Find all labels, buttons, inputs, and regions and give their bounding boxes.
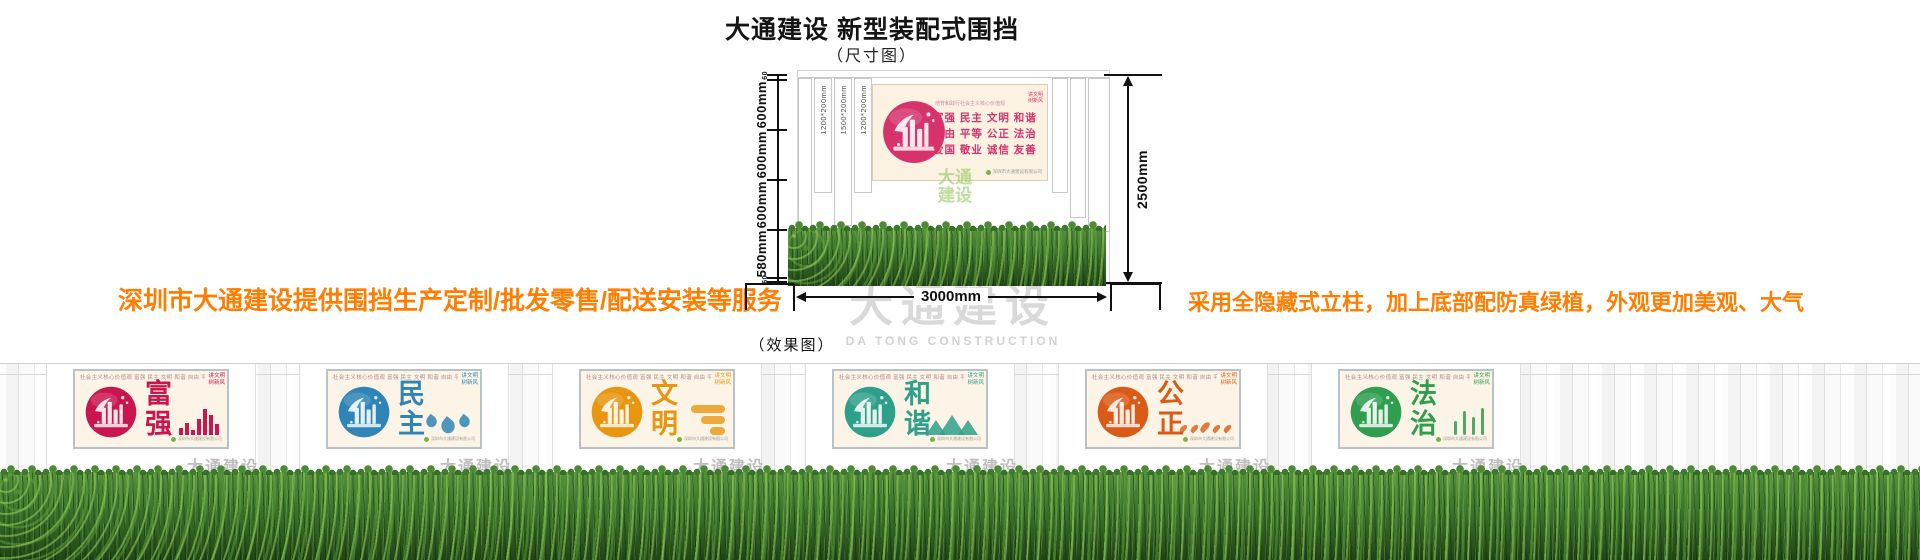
green-dot-icon — [677, 437, 682, 442]
post-column-1200b: 1200*200mm — [854, 78, 872, 193]
effect-panel-minzhu: 社会主义核心价值观 富强 民主 文明 和谐 自由 平等 公正 法治 爱国 敬业 … — [326, 369, 482, 449]
dim-label-600-2: 600mm — [754, 131, 769, 178]
dim-tick — [767, 79, 787, 81]
feature-note: 采用全隐藏式立柱，加上底部配防真绿植，外观更加美观、大气 — [1188, 285, 1804, 317]
slogan-corner: 讲文明 树新风 — [1028, 92, 1043, 104]
dim-tick-top — [1104, 74, 1162, 76]
dim-label-600-3: 600mm — [754, 181, 769, 228]
diagram-hedge-greenery — [788, 228, 1106, 286]
panel-motif-icon — [420, 403, 472, 435]
post-column-1500: 1500*200mm — [834, 78, 852, 226]
green-dot-icon — [1183, 437, 1188, 442]
dim-tick — [767, 74, 787, 76]
panel-footnote: 深圳市大通建设有限公司 — [677, 436, 728, 442]
post-column-right2 — [1070, 78, 1086, 218]
effect-panel-wenming: 社会主义核心价值观 富强 民主 文明 和谐 自由 平等 公正 法治 爱国 敬业 … — [579, 369, 735, 449]
green-dot-icon — [424, 437, 429, 442]
panel-footnote: 深圳市大通建设有限公司 — [424, 436, 475, 442]
green-logo-watermark: 大通 建设 — [938, 169, 972, 205]
fence-frame-left — [798, 78, 812, 232]
panel-footnote: 深圳市大通建设有限公司 — [1436, 436, 1487, 442]
dim-tick — [767, 277, 787, 279]
arrow-down-icon — [1123, 272, 1133, 282]
paper-cut-circle-art — [590, 385, 644, 439]
post-column-1200: 1200*200mm — [814, 78, 832, 193]
dim-endline-right — [1110, 284, 1112, 311]
panel-footnote: 深圳市大通建设有限公司 — [171, 436, 222, 442]
slogan-corner: 讲文明树新风 — [461, 373, 478, 386]
slogan-corner: 讲文明树新风 — [1473, 373, 1490, 386]
dim-tick — [767, 179, 787, 181]
paper-cut-circle-art — [843, 385, 897, 439]
dim-notch-left — [745, 283, 794, 310]
arrow-up-icon — [1123, 76, 1133, 86]
panel-motif-icon — [167, 403, 219, 435]
paper-cut-circle-art — [84, 385, 138, 439]
fence-top-rail — [798, 71, 1109, 78]
paper-cut-circle-art — [337, 385, 391, 439]
panel-footnote: 深圳市大通建设有限公司 — [1183, 436, 1234, 442]
size-diagram-caption: （尺寸图） — [827, 42, 917, 66]
green-dot-icon — [986, 170, 991, 175]
dim-label-3000: 3000mm — [914, 288, 988, 305]
panel-footnote: 深圳市大通建设有限公司 — [986, 169, 1043, 175]
green-dot-icon — [171, 437, 176, 442]
slogan-corner: 讲文明树新风 — [714, 373, 731, 386]
height-total-dimension — [1127, 78, 1129, 280]
dim-label-2500: 2500mm — [1134, 150, 1150, 209]
dim-label-600-1: 600mm — [754, 81, 769, 128]
dim-tick — [767, 129, 787, 131]
service-note: 深圳市大通建设提供围挡生产定制/批发零售/配送安装等服务 — [118, 281, 782, 317]
paper-cut-circle-art — [1096, 385, 1150, 439]
arrow-left-icon — [796, 292, 806, 302]
panel-motif-icon — [1179, 403, 1231, 435]
values-panel: 培育和践行社会主义核心价值观 富强 民主 文明 和谐 自由 平等 公正 法治 爱… — [872, 84, 1048, 181]
slogan-corner: 讲文明树新风 — [967, 373, 984, 386]
main-hedge-greenery — [0, 472, 1920, 560]
slogan-corner: 讲文明树新风 — [208, 373, 225, 386]
slogan-corner: 讲文明树新风 — [1220, 373, 1237, 386]
effect-panel-fuqiang: 社会主义核心价值观 富强 民主 文明 和谐 自由 平等 公正 法治 爱国 敬业 … — [73, 369, 229, 449]
paper-cut-circle-art — [1349, 385, 1403, 439]
values-panel-header: 培育和践行社会主义核心价值观 — [935, 100, 1005, 107]
dim-notch-right — [1112, 283, 1161, 310]
effect-caption: （效果图） — [749, 334, 834, 355]
dim-label-580: 580mm — [754, 230, 769, 277]
dim-tick — [767, 229, 787, 231]
core-values-text: 富强 民主 文明 和谐 自由 平等 公正 法治 爱国 敬业 诚信 友善 — [933, 110, 1037, 158]
panel-footnote: 深圳市大通建设有限公司 — [930, 436, 981, 442]
page-title: 大通建设 新型装配式围挡 — [725, 10, 1019, 46]
poster: 大通建设 新型装配式围挡 （尺寸图） 深圳市大通建设提供围挡生产定制/批发零售/… — [0, 0, 1920, 560]
height-dimension-line: 60 600mm 600mm 600mm 580mm 60 — [741, 75, 779, 283]
arrow-right-icon — [1097, 292, 1107, 302]
effect-panel-gongzheng: 社会主义核心价值观 富强 民主 文明 和谐 自由 平等 公正 法治 爱国 敬业 … — [1085, 369, 1241, 449]
fence-frame-right — [1088, 78, 1110, 232]
post-column-right1 — [1052, 78, 1068, 193]
panel-motif-icon — [1432, 403, 1484, 435]
brand-watermark-en: DA TONG CONSTRUCTION — [846, 334, 1061, 348]
effect-panel-hexie: 社会主义核心价值观 富强 民主 文明 和谐 自由 平等 公正 法治 爱国 敬业 … — [832, 369, 988, 449]
green-dot-icon — [1436, 437, 1441, 442]
panel-motif-icon — [926, 403, 978, 435]
effect-panel-fazhi: 社会主义核心价值观 富强 民主 文明 和谐 自由 平等 公正 法治 爱国 敬业 … — [1338, 369, 1494, 449]
dim-label-60-top: 60 — [762, 71, 769, 80]
dim-endline-left — [793, 284, 795, 311]
green-dot-icon — [930, 437, 935, 442]
panel-motif-icon — [673, 403, 725, 435]
